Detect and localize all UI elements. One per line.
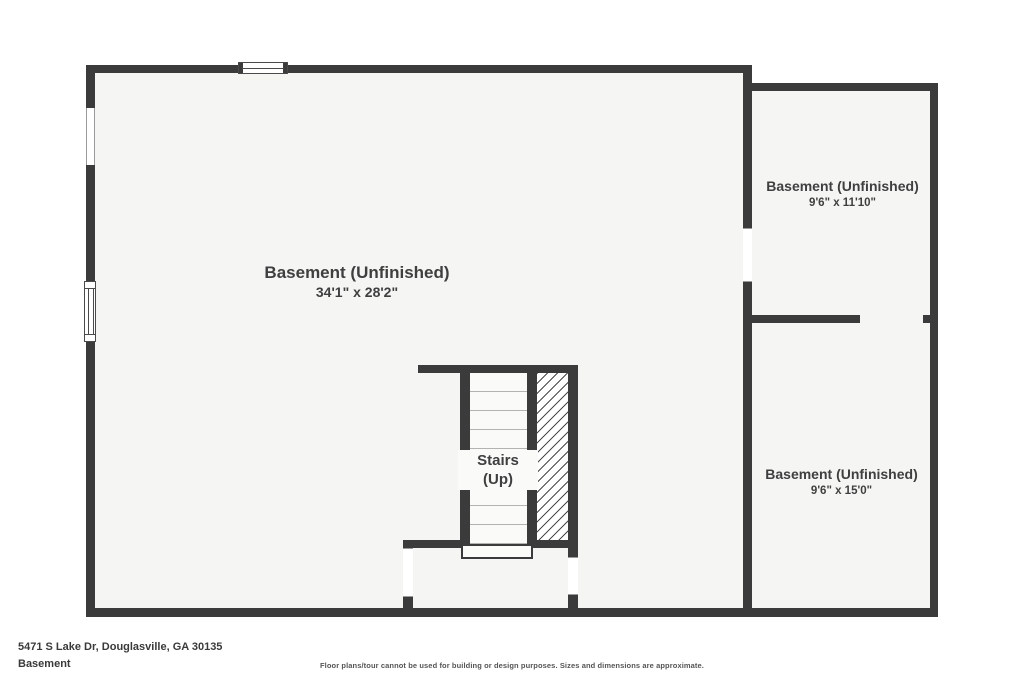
wall-wing-room-divider	[752, 315, 860, 323]
main-room-floor	[95, 73, 743, 608]
wall-wing-top	[752, 83, 938, 91]
window-pane-line	[242, 68, 284, 69]
window-left-wall	[84, 281, 96, 342]
wall-stairs-top	[418, 365, 578, 373]
room-dimensions: 34'1" x 28'2"	[197, 283, 517, 302]
opening-left-wall	[86, 108, 95, 165]
stairs-label-line2: (Up)	[458, 470, 538, 489]
address-text: 5471 S Lake Dr, Douglasville, GA 30135	[18, 641, 222, 654]
wall-right	[930, 83, 938, 617]
window-pane-line	[88, 289, 94, 334]
wall-bottom	[86, 608, 938, 617]
wall-top-main	[86, 65, 752, 73]
window-top-wall	[238, 62, 288, 74]
room-dimensions: 9'6" x 11'10"	[752, 195, 933, 211]
stair-landing	[461, 544, 533, 559]
stair-void-hatch	[537, 373, 568, 540]
floor-plan: Basement (Unfinished) 34'1" x 28'2" Base…	[0, 0, 1024, 682]
door-opening-stairs-right	[568, 557, 578, 595]
door-opening-upper-right-room	[743, 228, 752, 282]
wall-wing-room-divider-stub	[923, 315, 930, 323]
stairs-label-line1: Stairs	[458, 451, 538, 470]
room-dimensions: 9'6" x 15'0"	[751, 483, 932, 499]
stairs-label: Stairs (Up)	[458, 450, 538, 490]
room-name: Basement (Unfinished)	[751, 466, 932, 483]
lower-right-room-label: Basement (Unfinished) 9'6" x 15'0"	[751, 466, 932, 499]
window-sill-line	[85, 334, 95, 335]
room-name: Basement (Unfinished)	[197, 263, 517, 283]
room-name: Basement (Unfinished)	[752, 178, 933, 195]
wall-main-wing-divider	[743, 65, 752, 608]
door-opening-lower-left	[403, 548, 413, 597]
disclaimer-text: Floor plans/tour cannot be used for buil…	[0, 661, 1024, 670]
upper-right-room-label: Basement (Unfinished) 9'6" x 11'10"	[752, 178, 933, 211]
main-room-label: Basement (Unfinished) 34'1" x 28'2"	[197, 263, 517, 302]
right-wing-floor	[752, 91, 930, 608]
